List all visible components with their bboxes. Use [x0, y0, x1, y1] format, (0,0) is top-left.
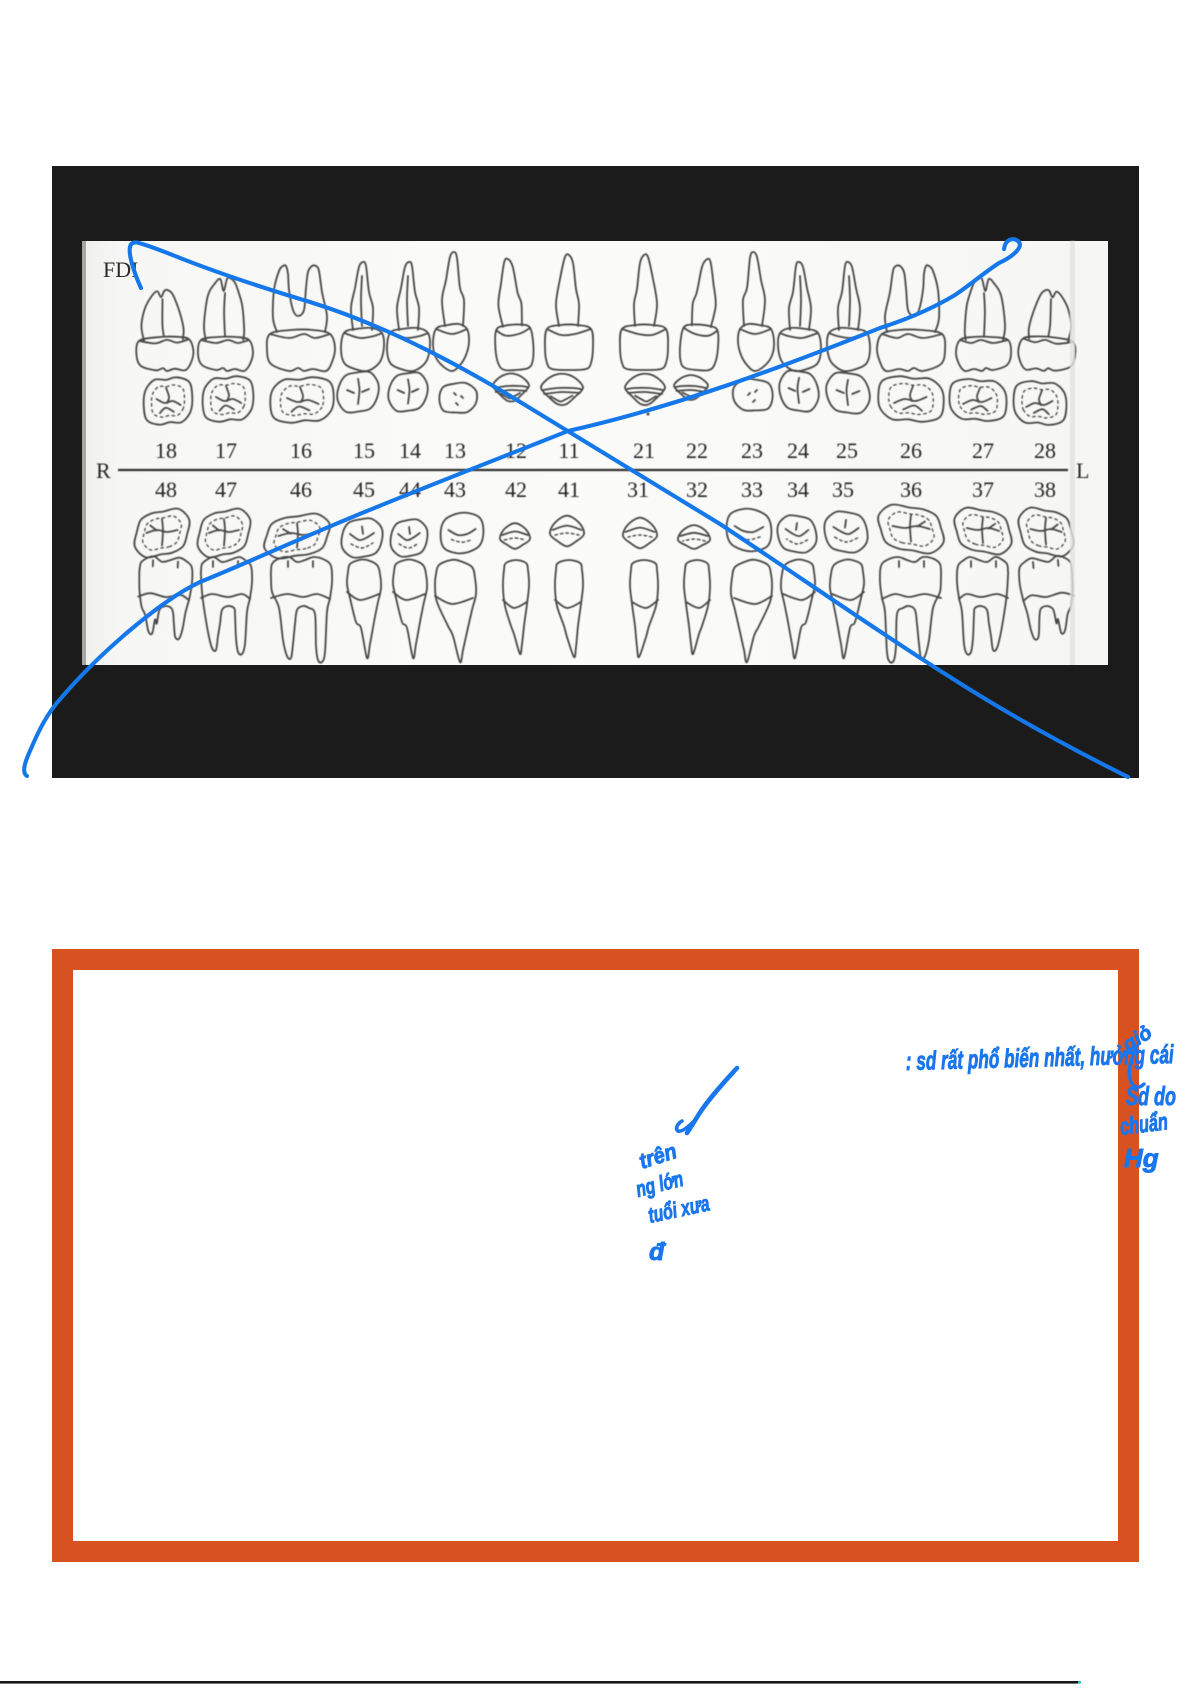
svg-text:24: 24 — [787, 438, 809, 463]
svg-text:23: 23 — [741, 438, 763, 463]
svg-text:13: 13 — [444, 438, 466, 463]
svg-text:22: 22 — [686, 438, 708, 463]
svg-text:14: 14 — [399, 438, 421, 463]
svg-text:L: L — [1076, 458, 1089, 483]
svg-text:34: 34 — [787, 477, 809, 502]
svg-text:26: 26 — [900, 438, 922, 463]
svg-text:37: 37 — [972, 477, 994, 502]
svg-text:32: 32 — [686, 477, 708, 502]
svg-text:35: 35 — [832, 477, 854, 502]
svg-text:17: 17 — [215, 438, 237, 463]
svg-text:15: 15 — [353, 438, 375, 463]
svg-text:33: 33 — [741, 477, 763, 502]
svg-text:46: 46 — [290, 477, 312, 502]
svg-text:25: 25 — [836, 438, 858, 463]
svg-text:18: 18 — [155, 438, 177, 463]
svg-text:36: 36 — [900, 477, 922, 502]
svg-text:38: 38 — [1034, 477, 1056, 502]
svg-text:47: 47 — [215, 477, 237, 502]
svg-text:Hg: Hg — [1124, 1143, 1159, 1173]
svg-text:đ: đ — [649, 1238, 666, 1266]
svg-text:11: 11 — [558, 438, 579, 463]
svg-text:45: 45 — [353, 477, 375, 502]
svg-text:41: 41 — [558, 477, 580, 502]
svg-text:27: 27 — [972, 438, 994, 463]
svg-text:48: 48 — [155, 477, 177, 502]
svg-text:42: 42 — [505, 477, 527, 502]
svg-text:16: 16 — [290, 438, 312, 463]
svg-text:R: R — [96, 458, 111, 483]
svg-text:21: 21 — [633, 438, 655, 463]
svg-text:28: 28 — [1034, 438, 1056, 463]
